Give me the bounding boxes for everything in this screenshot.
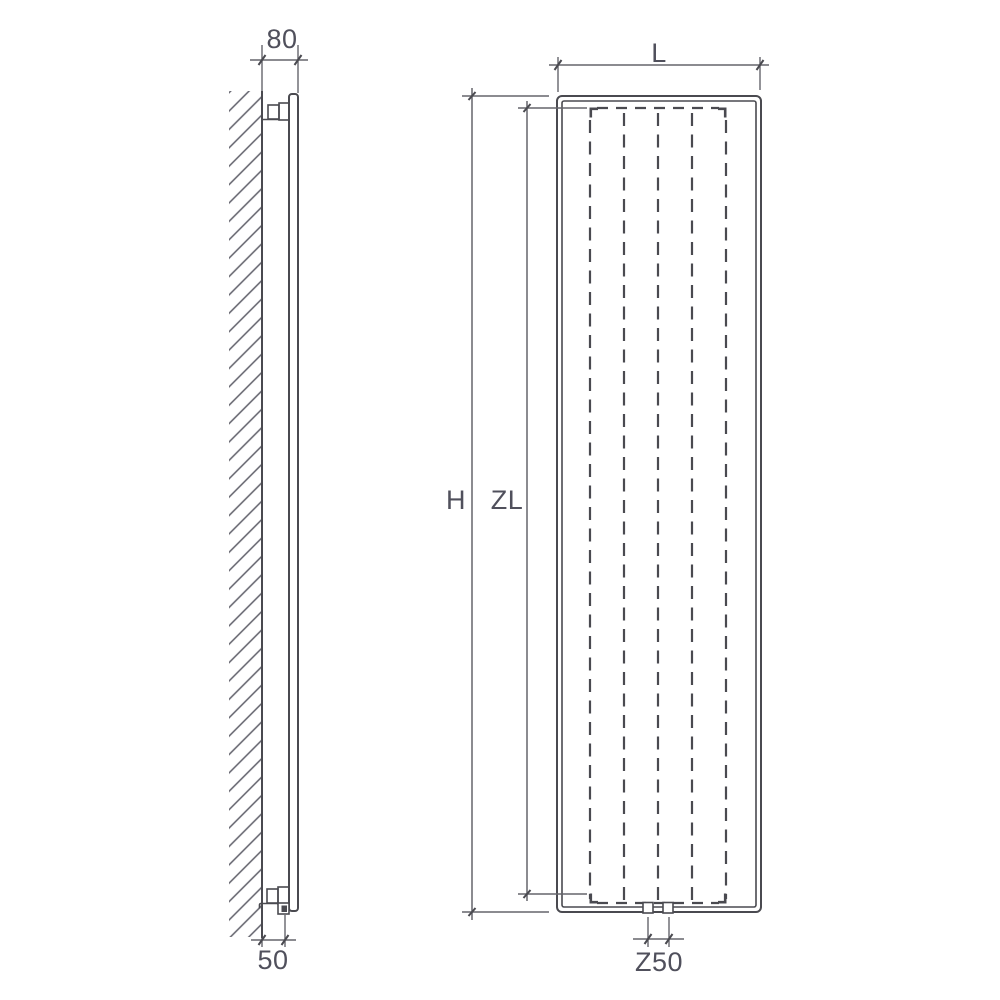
radiator-drawing-canvas: 80 50 [0, 0, 1000, 1000]
bracket-block [268, 105, 279, 119]
dimension-label-ZL: ZL [491, 485, 524, 515]
wall-hatch [229, 91, 262, 937]
top-mounting-bracket [262, 103, 289, 126]
dimension-label-50: 50 [257, 945, 288, 975]
dimension-width-L: L [549, 38, 769, 92]
dimension-label-L: L [651, 38, 667, 68]
dimension-depth-80: 80 [250, 24, 308, 93]
dimension-label-H: H [446, 485, 466, 515]
connector-right [663, 903, 673, 914]
connector-left [643, 903, 653, 914]
front-view: L H ZL [446, 38, 769, 977]
bracket-clamp [279, 103, 289, 120]
dimension-label-Z50: Z50 [635, 947, 683, 977]
dimension-label-80: 80 [266, 24, 297, 54]
bracket-block [267, 889, 278, 903]
bracket-lip [262, 120, 279, 126]
technical-drawing-page: 80 50 [0, 0, 1000, 1000]
radiator-panel-side [289, 94, 298, 911]
bracket-clamp [278, 887, 289, 904]
side-view: 80 50 [229, 24, 308, 975]
dimension-connection-Z50: Z50 [633, 917, 684, 977]
connection-pipe [282, 906, 288, 913]
bottom-mounting-bracket [260, 887, 290, 914]
